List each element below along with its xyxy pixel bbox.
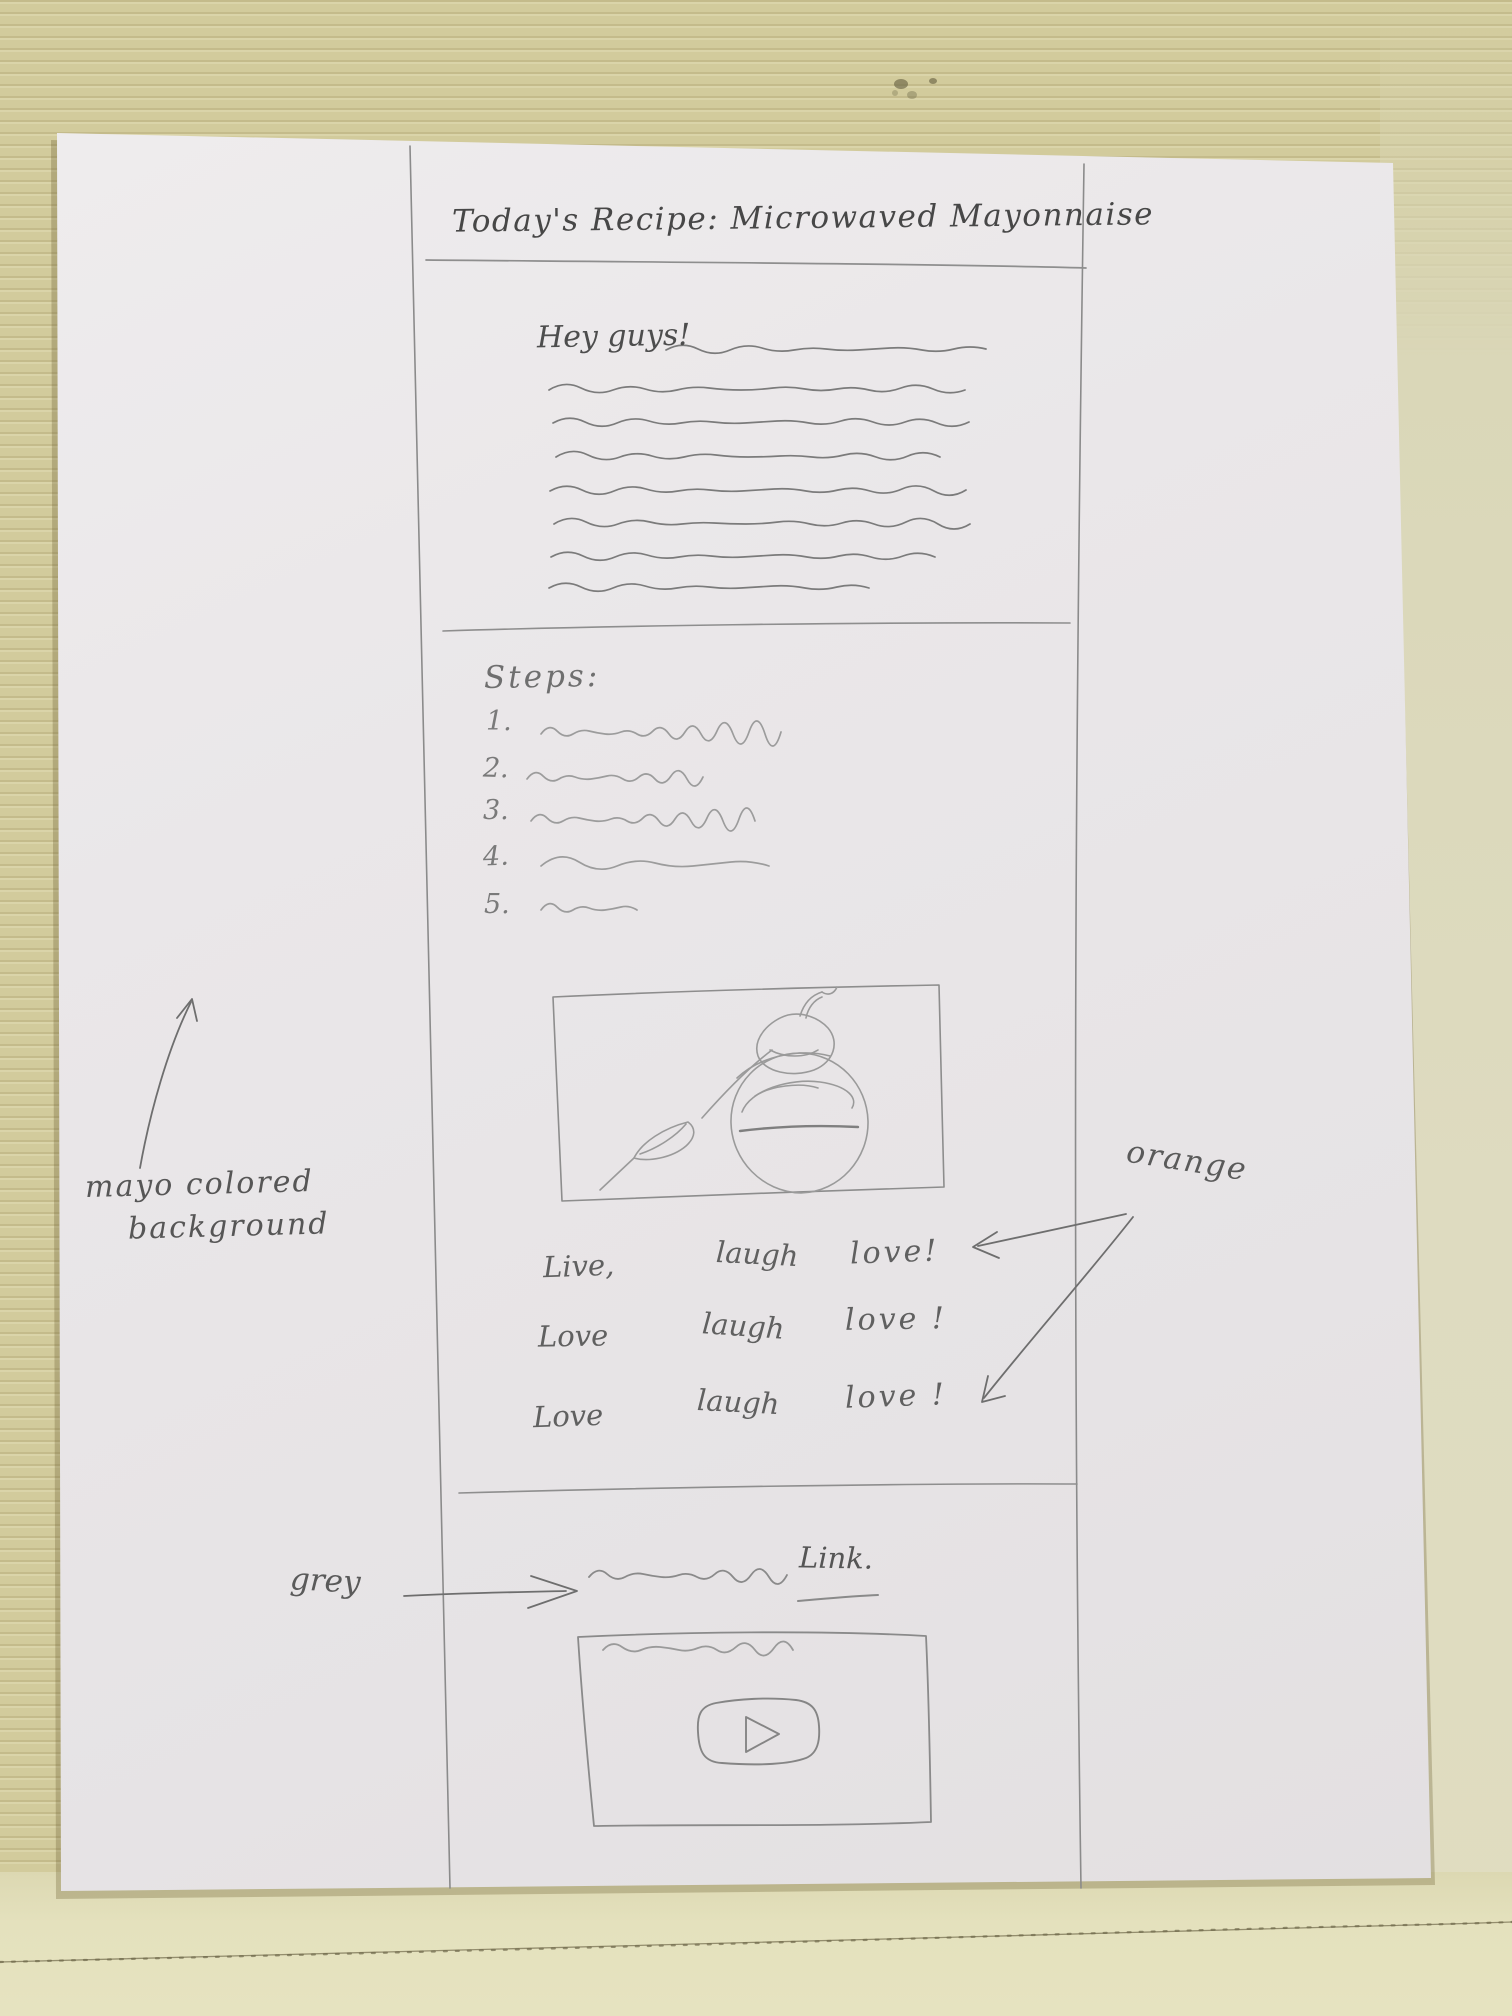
link-text: Link.	[799, 1543, 874, 1573]
slogan-word: laugh	[715, 1238, 799, 1271]
slogan-word: laugh	[701, 1309, 785, 1344]
slogan-word: love !	[845, 1304, 947, 1336]
photo-of-wireframe-sketch: Today's Recipe: Microwaved Mayonnaise He…	[0, 0, 1512, 2016]
step-number: 2.	[483, 755, 510, 783]
step-number: 1.	[486, 708, 512, 735]
slogan-word: love!	[850, 1236, 940, 1269]
annotation-mayo-line2: background	[128, 1209, 330, 1244]
step-number: 4.	[483, 843, 510, 871]
steps-heading: Steps:	[484, 661, 601, 694]
slogan-word: Love	[538, 1321, 609, 1351]
slogan-word: Love	[533, 1401, 604, 1432]
paper-sheet	[0, 0, 1512, 2016]
page-title: Today's Recipe: Microwaved Mayonnaise	[452, 199, 1154, 237]
annotation-mayo-line1: mayo colored	[85, 1167, 314, 1203]
annotation-grey: grey	[289, 1564, 361, 1599]
slogan-word: love !	[845, 1380, 948, 1414]
step-number: 3.	[483, 797, 509, 824]
greeting-text: Hey guys!	[537, 321, 691, 354]
slogan-word: laugh	[696, 1386, 780, 1419]
slogan-word: Live,	[543, 1251, 615, 1282]
step-number: 5.	[484, 891, 510, 918]
